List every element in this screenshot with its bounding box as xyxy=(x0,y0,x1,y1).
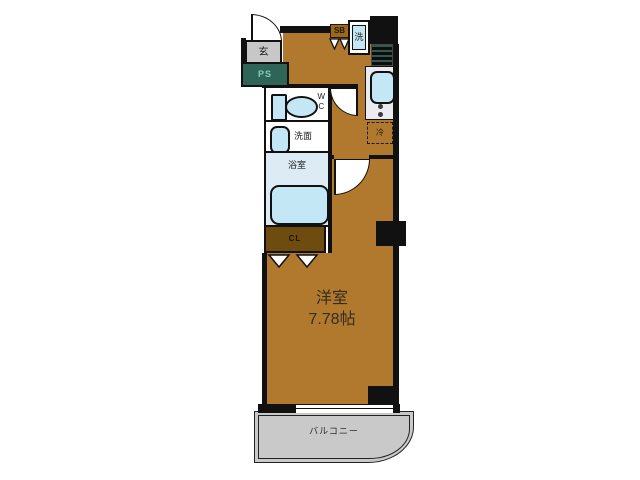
bifold-door-icon xyxy=(266,254,322,268)
wall-pillar xyxy=(376,221,406,246)
bathtub-icon xyxy=(270,185,329,225)
kitchen-counter xyxy=(365,66,394,120)
closet: CL xyxy=(264,225,326,253)
stove-icon xyxy=(371,44,393,66)
washing-machine-icon: 洗 xyxy=(352,25,366,50)
wall-segment xyxy=(262,253,267,410)
burner-icon xyxy=(378,112,383,117)
main-room-size: 7.78帖 xyxy=(268,309,396,330)
wall-segment xyxy=(258,404,296,413)
washroom-label: 洗面 xyxy=(294,132,312,142)
closet-label: CL xyxy=(289,235,302,244)
main-room-name: 洋室 xyxy=(268,288,396,309)
refrigerator-outline-icon: 冷 xyxy=(367,122,393,144)
floorplan-canvas: バルコニー 玄 PS SB 洗 xyxy=(0,0,640,480)
entrance-door-swing-icon xyxy=(251,14,282,42)
wall-segment xyxy=(369,155,398,159)
refrigerator-label: 冷 xyxy=(376,129,384,138)
wall-segment xyxy=(393,404,400,413)
wc-label: W C xyxy=(317,92,325,113)
bathroom-label: 浴室 xyxy=(266,161,328,171)
washbasin-icon xyxy=(270,126,290,154)
burner-icon xyxy=(378,104,383,109)
pipe-space: PS xyxy=(241,62,289,87)
washer-label: 洗 xyxy=(354,33,363,43)
wall-segment xyxy=(368,386,394,406)
main-room-floor-left xyxy=(264,253,334,410)
toilet-bowl-icon xyxy=(285,96,318,118)
balcony-label: バルコニー xyxy=(255,427,413,437)
bathroom: 浴室 xyxy=(264,151,330,227)
shoe-box: SB xyxy=(330,24,349,38)
washing-machine-box: 洗 xyxy=(348,20,370,55)
entrance-area: 玄 xyxy=(245,40,282,64)
window-icon xyxy=(296,404,393,413)
window-sash-line xyxy=(296,408,393,409)
wc-room: W C xyxy=(264,86,330,122)
main-room-label: 洋室 7.78帖 xyxy=(268,288,396,330)
shoe-box-label: SB xyxy=(334,27,345,36)
wall-segment xyxy=(370,16,398,44)
pipe-space-label: PS xyxy=(258,70,272,80)
wall-segment xyxy=(280,26,332,33)
bifold-door-icon xyxy=(329,38,350,50)
washroom: 洗面 xyxy=(264,120,330,153)
entrance-label: 玄 xyxy=(259,47,269,58)
kitchen-sink-icon xyxy=(370,71,395,104)
balcony: バルコニー xyxy=(254,411,414,463)
